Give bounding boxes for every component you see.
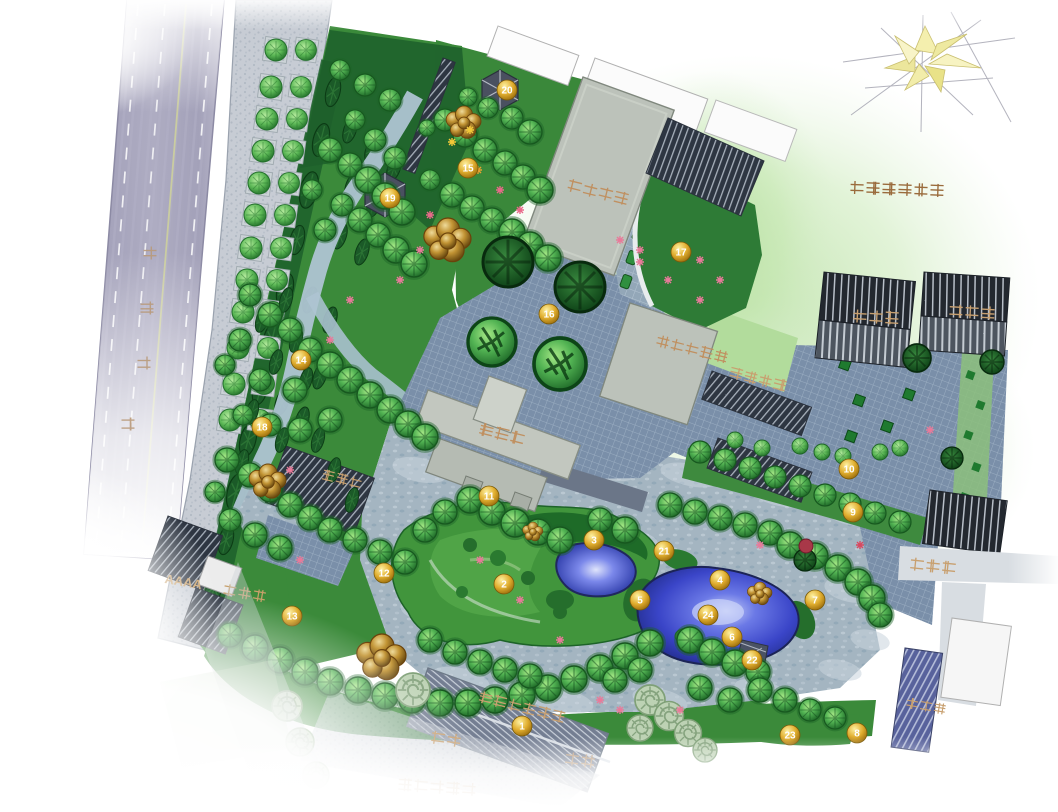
svg-text:15: 15: [462, 164, 474, 175]
svg-text:5: 5: [637, 596, 643, 607]
svg-text:7: 7: [812, 596, 818, 607]
svg-text:3: 3: [591, 536, 597, 547]
svg-text:16: 16: [543, 310, 555, 321]
svg-text:19: 19: [384, 194, 396, 205]
svg-text:6: 6: [729, 633, 735, 644]
svg-text:10: 10: [843, 465, 855, 476]
svg-text:9: 9: [850, 508, 856, 519]
svg-text:17: 17: [675, 248, 687, 259]
svg-text:22: 22: [746, 656, 758, 667]
svg-text:1: 1: [519, 722, 525, 733]
svg-text:18: 18: [256, 423, 268, 434]
svg-text:24: 24: [702, 611, 714, 622]
svg-text:12: 12: [378, 569, 390, 580]
svg-text:14: 14: [295, 356, 307, 367]
svg-text:2: 2: [501, 580, 507, 591]
svg-text:4: 4: [717, 576, 723, 587]
svg-text:21: 21: [658, 547, 670, 558]
svg-text:20: 20: [501, 86, 513, 97]
svg-text:11: 11: [484, 492, 495, 503]
